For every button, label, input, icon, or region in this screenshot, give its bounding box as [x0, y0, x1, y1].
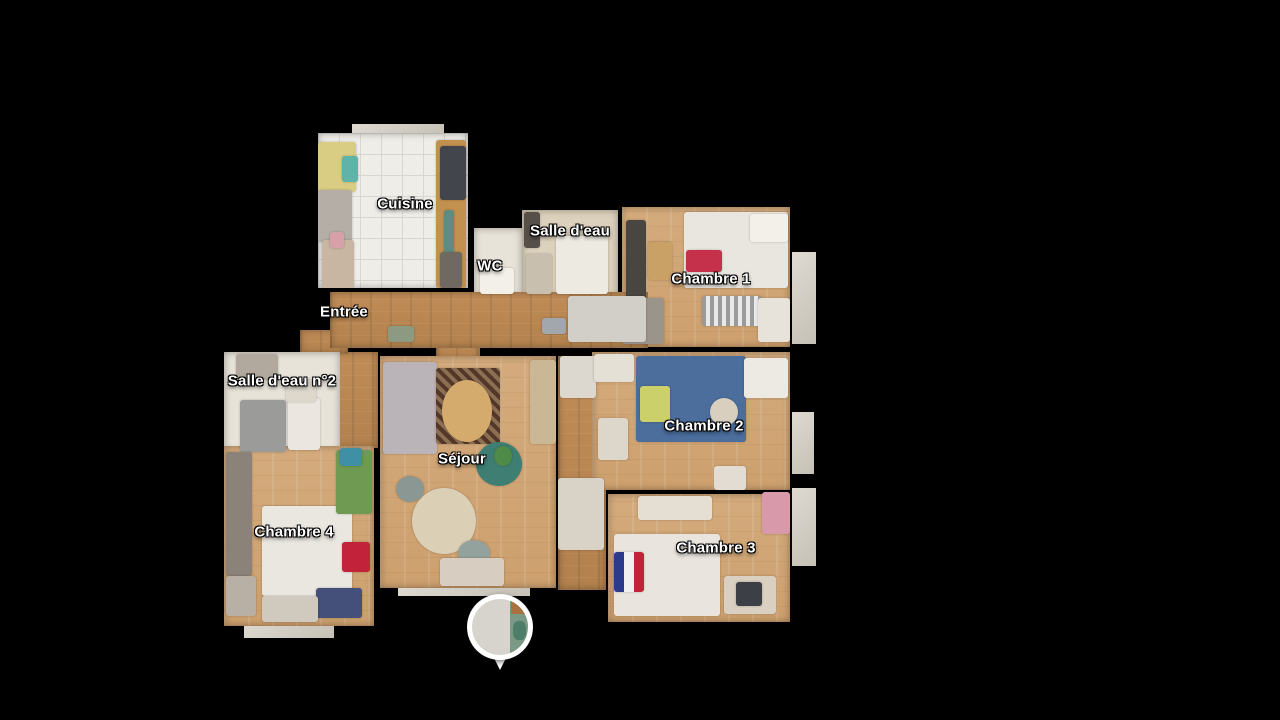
- bath2-shower: [240, 400, 286, 452]
- c4-clutter-left: [226, 452, 252, 576]
- plant: [494, 446, 512, 466]
- room-label-wc: WC: [477, 258, 502, 275]
- hall-object-2: [542, 318, 566, 334]
- c1-wardrobe: [626, 220, 646, 300]
- c4-blue-item: [316, 588, 362, 618]
- c3-chair: [736, 582, 762, 606]
- pin-photo-wall: [472, 599, 510, 655]
- room-label-salle-deau: Salle d'eau: [530, 223, 610, 240]
- c3-pink-items: [762, 492, 790, 534]
- room-window-bay-1[interactable]: [792, 252, 816, 344]
- c1-tan-box: [648, 242, 672, 280]
- pin-photo-dark-accent: [513, 621, 525, 640]
- c2-pillow-white: [744, 358, 788, 398]
- room-label-chambre-3: Chambre 3: [676, 540, 755, 557]
- pin-photo-wood-accent: [511, 599, 528, 614]
- panorama-pin[interactable]: [467, 594, 533, 674]
- sofa: [383, 362, 437, 454]
- room-label-salle-deau-2: Salle d'eau n°2: [228, 373, 336, 390]
- bath1-shower: [556, 236, 608, 294]
- c4-red-blanket: [342, 542, 370, 572]
- sejour-clutter: [440, 558, 504, 586]
- c4-bed: [262, 506, 352, 596]
- bath2-tray: [288, 398, 320, 450]
- room-label-chambre-1: Chambre 1: [671, 271, 750, 288]
- floorplan-stage[interactable]: CuisineWCSalle d'eauChambre 1EntréeSalle…: [0, 0, 1280, 720]
- dining-chair-1: [396, 476, 424, 502]
- bath1-mat: [526, 254, 552, 294]
- room-window-bay-2[interactable]: [792, 412, 814, 474]
- kitchen-dark-low: [440, 252, 462, 288]
- hall-object-1: [388, 326, 414, 342]
- hall-fragment: [568, 296, 646, 342]
- c1-radiator: [702, 296, 762, 326]
- kitchen-clutter-pink: [330, 232, 344, 248]
- corridor-door: [560, 356, 596, 398]
- c1-red-blanket: [686, 250, 722, 272]
- c4-clutter-left2: [226, 576, 256, 616]
- room-label-sejour: Séjour: [438, 451, 486, 468]
- room-label-chambre-4: Chambre 4: [254, 524, 333, 541]
- kitchen-appliance: [440, 146, 466, 200]
- room-label-entree: Entrée: [320, 304, 368, 321]
- coffee-table: [442, 380, 492, 442]
- c4-teal-item: [340, 448, 362, 466]
- c4-clutter-bottom: [262, 596, 318, 622]
- c2-bag: [714, 466, 746, 490]
- sideboard: [530, 360, 556, 444]
- pin-panorama-thumbnail: [472, 599, 528, 655]
- c3-shelf: [638, 496, 712, 520]
- room-label-cuisine: Cuisine: [377, 196, 433, 213]
- c3-flag-blanket: [614, 552, 644, 592]
- c1-pillow: [750, 214, 788, 242]
- room-window-bay-3[interactable]: [792, 488, 816, 566]
- c2-dresser: [594, 354, 634, 382]
- room-label-chambre-2: Chambre 2: [664, 418, 743, 435]
- corridor-clutter: [558, 478, 604, 550]
- c1-white-corner: [758, 298, 790, 342]
- kitchen-clutter-teal: [342, 156, 358, 182]
- c2-chair: [598, 418, 628, 460]
